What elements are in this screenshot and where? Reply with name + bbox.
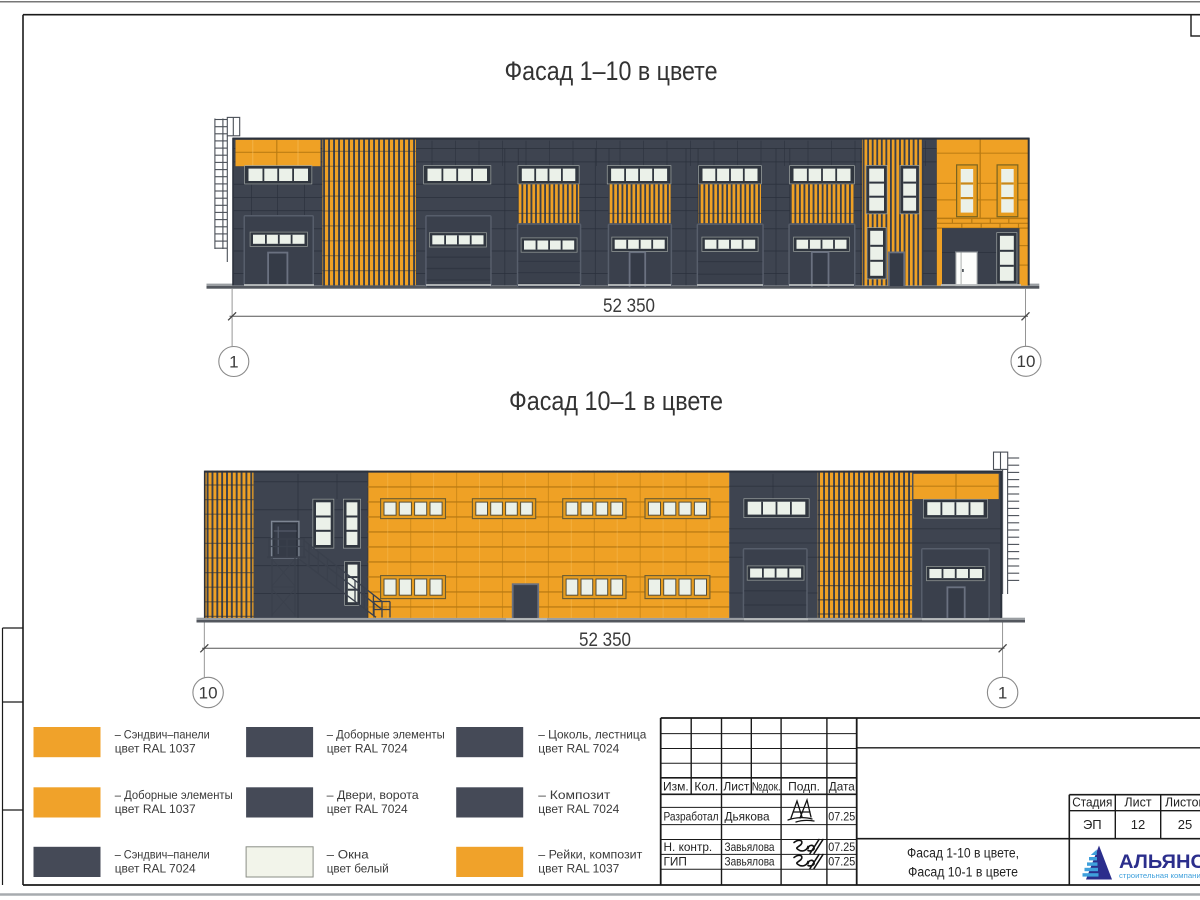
- svg-text:52 350: 52 350: [603, 296, 655, 317]
- svg-text:Лист: Лист: [723, 779, 749, 793]
- svg-text:07.25: 07.25: [828, 855, 855, 869]
- svg-text:10: 10: [199, 683, 218, 702]
- svg-text:АЛЬЯНС: АЛЬЯНС: [1119, 852, 1200, 873]
- svg-text:– Доборные элементы: – Доборные элементы: [327, 728, 445, 742]
- svg-text:Стадия: Стадия: [1072, 795, 1112, 809]
- svg-text:– Окна: – Окна: [327, 847, 369, 861]
- svg-text:Кол.: Кол.: [694, 779, 718, 793]
- svg-text:Дьякова: Дьякова: [725, 809, 771, 823]
- svg-text:цвет RAL 7024: цвет RAL 7024: [115, 861, 196, 875]
- svg-text:Завьялова: Завьялова: [725, 840, 775, 854]
- svg-text:ГИП: ГИП: [664, 855, 687, 869]
- svg-text:Изм.: Изм.: [663, 779, 689, 793]
- svg-text:Листов: Листов: [1165, 795, 1200, 809]
- svg-text:цвет RAL 7024: цвет RAL 7024: [327, 802, 408, 816]
- svg-text:10: 10: [1017, 352, 1036, 371]
- svg-text:– Композит: – Композит: [538, 788, 610, 802]
- svg-text:– Сэндвич–панели: – Сэндвич–панели: [115, 728, 210, 742]
- svg-text:Н. контр.: Н. контр.: [664, 840, 713, 854]
- svg-text:Завьялова: Завьялова: [725, 855, 775, 869]
- svg-text:Фасад 1–10 в цвете: Фасад 1–10 в цвете: [505, 56, 718, 86]
- svg-text:12: 12: [1131, 817, 1145, 832]
- svg-text:– Цоколь, лестница: – Цоколь, лестница: [538, 728, 646, 742]
- svg-text:– Доборные элементы: – Доборные элементы: [115, 788, 233, 802]
- svg-text:Разработал: Разработал: [664, 809, 719, 823]
- svg-text:07.25: 07.25: [828, 809, 855, 823]
- svg-text:1: 1: [229, 352, 238, 371]
- svg-text:цвет RAL 1037: цвет RAL 1037: [115, 802, 196, 816]
- svg-text:цвет RAL 1037: цвет RAL 1037: [538, 861, 619, 875]
- svg-text:цвет RAL 1037: цвет RAL 1037: [115, 742, 196, 756]
- svg-text:Фасад 10-1 в цвете: Фасад 10-1 в цвете: [908, 865, 1018, 880]
- svg-text:Фасад 10–1 в цвете: Фасад 10–1 в цвете: [509, 386, 723, 416]
- svg-text:цвет белый: цвет белый: [327, 861, 389, 875]
- svg-text:Подп.: Подп.: [788, 779, 820, 793]
- svg-text:Дата: Дата: [829, 779, 855, 793]
- svg-text:07.25: 07.25: [828, 840, 855, 854]
- svg-text:Фасад 1-10 в цвете,: Фасад 1-10 в цвете,: [907, 846, 1019, 861]
- svg-text:№док.: №док.: [752, 779, 781, 793]
- svg-text:– Рейки, композит: – Рейки, композит: [538, 847, 642, 861]
- svg-text:Лист: Лист: [1124, 795, 1151, 809]
- svg-text:52 350: 52 350: [579, 630, 631, 651]
- svg-text:строительная компания: строительная компания: [1119, 871, 1200, 880]
- svg-text:цвет RAL 7024: цвет RAL 7024: [538, 802, 619, 816]
- svg-text:ЭП: ЭП: [1083, 817, 1102, 832]
- svg-text:цвет RAL 7024: цвет RAL 7024: [538, 742, 619, 756]
- svg-text:25: 25: [1178, 817, 1192, 832]
- svg-text:1: 1: [998, 684, 1007, 703]
- svg-text:– Двери, ворота: – Двери, ворота: [327, 788, 419, 802]
- svg-text:цвет RAL 7024: цвет RAL 7024: [327, 742, 408, 756]
- svg-text:– Сэндвич–панели: – Сэндвич–панели: [115, 847, 210, 861]
